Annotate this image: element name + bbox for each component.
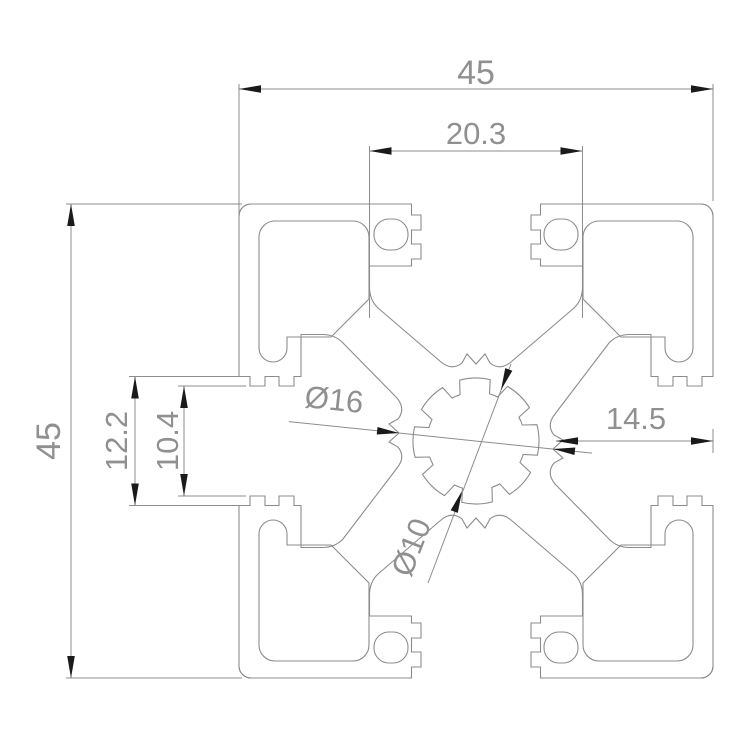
arrowhead bbox=[131, 484, 139, 506]
arrowhead bbox=[239, 85, 261, 93]
dimension-text-web-to-face: 14.5 bbox=[606, 401, 666, 436]
drawing-canvas: 45 20.3 45 12.2 10.4 bbox=[0, 0, 750, 750]
profile-edge-top bbox=[239, 204, 713, 367]
dimension-overall-height: 45 bbox=[30, 204, 75, 678]
dimension-slot-opening-width: 10.4 bbox=[150, 386, 188, 496]
arrowhead bbox=[691, 85, 713, 93]
dimension-overall-width: 45 bbox=[239, 54, 713, 93]
extension-lines bbox=[66, 84, 713, 678]
arrowhead bbox=[691, 437, 713, 445]
dimension-text-bore-outer: Ø16 bbox=[303, 379, 365, 420]
dimension-line bbox=[289, 422, 592, 454]
profile-edge-bottom bbox=[239, 515, 713, 678]
dimension-bore-inner: Ø10 bbox=[384, 364, 512, 583]
screw-channel-hole bbox=[544, 632, 578, 663]
arrowhead bbox=[67, 656, 75, 678]
corner-cavity-bottom-right bbox=[583, 520, 693, 661]
corner-cavity-bottom-left bbox=[259, 520, 369, 661]
arrowhead bbox=[180, 474, 188, 496]
dimension-bore-outer: Ø16 bbox=[289, 379, 592, 455]
corner-cavity-top-right bbox=[583, 221, 693, 362]
dimension-line bbox=[428, 364, 511, 583]
dimension-text-overall-width: 45 bbox=[457, 54, 495, 92]
technical-drawing: 45 20.3 45 12.2 10.4 bbox=[0, 0, 750, 750]
arrowhead bbox=[180, 386, 188, 408]
dimension-text-bore-inner: Ø10 bbox=[384, 514, 438, 581]
dimension-web-to-face: 14.5 bbox=[556, 401, 713, 445]
arrowhead bbox=[131, 377, 139, 399]
dimension-text-overall-height: 45 bbox=[30, 422, 68, 460]
dimension-text-slot-opening-width: 10.4 bbox=[150, 411, 185, 471]
screw-channel-hole bbox=[544, 219, 578, 250]
arrowhead bbox=[561, 147, 583, 155]
arrowhead bbox=[370, 147, 392, 155]
corner-cavity-top-left bbox=[259, 221, 369, 362]
screw-channel-hole bbox=[374, 632, 408, 663]
screw-channel-hole bbox=[374, 219, 408, 250]
profile-edge-left bbox=[239, 204, 402, 678]
dimension-text-slot-cavity-width: 20.3 bbox=[446, 116, 506, 151]
dimension-slot-cavity-width: 20.3 bbox=[370, 116, 583, 155]
dimension-slot-recess-width: 12.2 bbox=[99, 377, 139, 506]
arrowhead bbox=[451, 490, 466, 513]
dimension-text-slot-recess-width: 12.2 bbox=[99, 411, 134, 471]
arrowhead bbox=[67, 204, 75, 226]
